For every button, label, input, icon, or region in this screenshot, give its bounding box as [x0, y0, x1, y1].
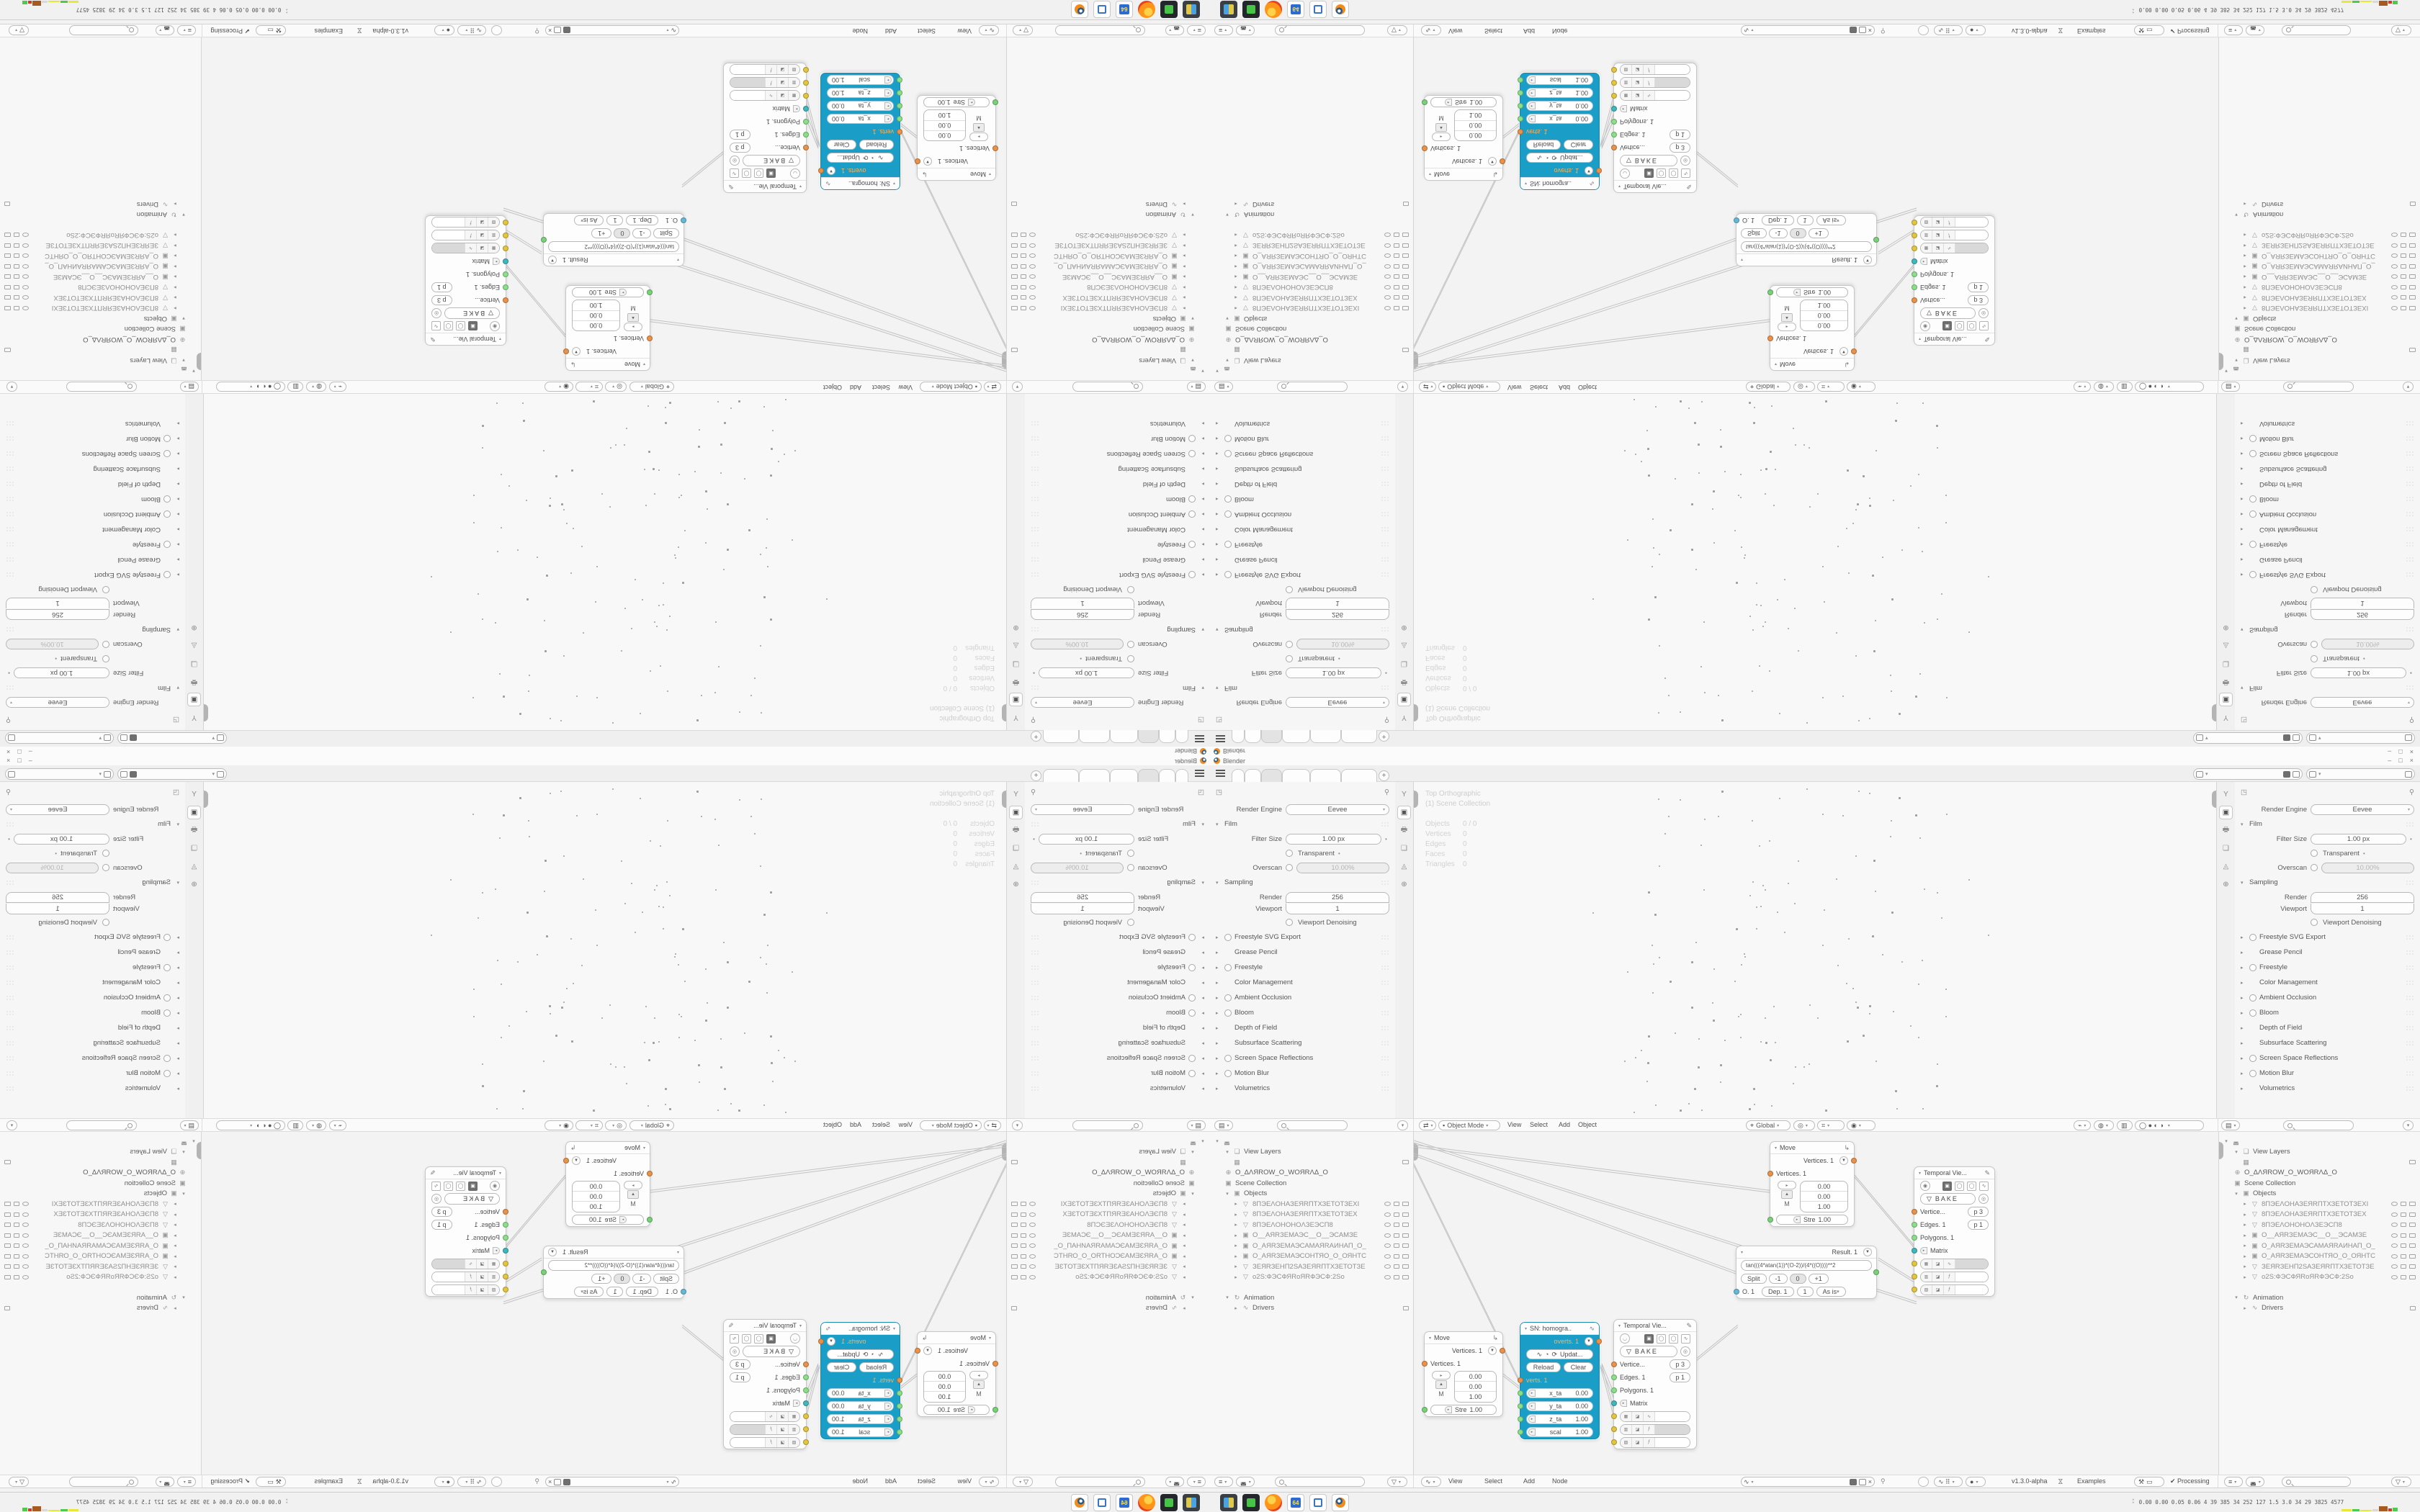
cube-toggle-icon[interactable]: ▣	[1942, 1182, 1952, 1191]
editor-type-button[interactable]: ⇄▾	[1419, 382, 1436, 392]
sampling-render-field[interactable]: 256	[2311, 610, 2414, 621]
outliner-row-drivers[interactable]: ▸∿Drivers	[2223, 199, 2417, 210]
drag-grip-icon[interactable]	[2406, 557, 2414, 563]
collapsed-section-header[interactable]: ▸ Color Management	[1031, 522, 1204, 537]
outliner-object-row[interactable]: ▸▽ 8ПЭЕΛОНОНОΛЗЕЭСП8	[1214, 282, 1410, 293]
hide-eye-icon[interactable]	[1029, 1254, 1036, 1259]
render-properties-tab[interactable]: ▣	[1397, 693, 1411, 706]
section-checkbox[interactable]	[1188, 436, 1196, 443]
outliner-search-input[interactable]	[69, 1477, 138, 1487]
outliner-object-row[interactable]: ▸▣ O_АЯRЗЕМАЭСОНТЯО_O_ОЯНТС	[1214, 251, 1410, 261]
socket-matrix-in[interactable]	[1912, 1248, 1917, 1254]
node-move[interactable]: ▾Move↳ Vertices. 1▼ Vertices. 1 ▸▲M 0.00…	[565, 1141, 650, 1227]
hide-viewport-icon[interactable]	[1394, 285, 1399, 289]
outliner-row-scene-collection[interactable]: ▣Scene Collection	[1010, 1178, 1206, 1189]
collapsed-section-header[interactable]: ▸ Bloom	[1031, 492, 1204, 507]
hide-viewport-icon[interactable]	[14, 285, 19, 289]
collapsed-section-header[interactable]: ▸ Freestyle	[2241, 960, 2414, 975]
collapsed-section-header[interactable]: ▸ Screen Space Reflections	[2241, 446, 2414, 462]
filter-mode-button[interactable]: ◛▾	[2246, 1477, 2264, 1487]
collapsed-section-header[interactable]: ▸ Volumetrics	[2241, 1081, 2414, 1096]
outliner-object-row[interactable]: ▸▽ 8ПЭЕΛОНОНОΛЗЕЭСП8	[2223, 1220, 2417, 1230]
socket-polygons-in[interactable]	[1611, 1387, 1617, 1393]
drag-grip-icon[interactable]	[1031, 1071, 1039, 1076]
outliner-object-row[interactable]: ▸▽ 8ПЭЕΛОНОНОΛЗЕЭСП8	[1214, 1220, 1410, 1230]
outliner-object-row[interactable]: ▸▽ ЗЕЯRЗЕНП2SАЗЕЯRПТХЗЕТОТЗЕ	[3, 240, 197, 251]
drag-grip-icon[interactable]	[1031, 1056, 1039, 1061]
add-workspace-button[interactable]: +	[1031, 731, 1041, 742]
camera-icon[interactable]	[1011, 348, 1018, 352]
hide-render-icon[interactable]	[2409, 1202, 2416, 1206]
hide-eye-icon[interactable]	[22, 1223, 29, 1227]
socket-texture-in[interactable]	[803, 93, 809, 99]
drag-grip-icon[interactable]	[2406, 512, 2414, 518]
sampling-section-header[interactable]: ▾Sampling	[2241, 622, 2414, 637]
outliner-row-view-layers[interactable]: ▾❏View Layers	[1010, 355, 1206, 366]
outliner-object-row[interactable]: ▸▽ ЗЕЯRЗЕНП2SАЗЕЯRПТХЗЕТОТЗЕ	[1214, 1261, 1410, 1272]
minimize-button[interactable]: –	[2388, 757, 2391, 764]
collapsed-section-header[interactable]: ▸ Freestyle	[2241, 537, 2414, 552]
collapsed-section-header[interactable]: ▸ Ambient Occlusion	[1216, 990, 1389, 1005]
tool-circle-button[interactable]	[491, 25, 502, 35]
menu-view[interactable]: View	[1448, 1477, 1462, 1485]
sampling-render-field[interactable]: 256	[1286, 610, 1389, 621]
collapsed-section-header[interactable]: ▸ Ambient Occlusion	[1031, 507, 1204, 522]
hide-viewport-icon[interactable]	[1021, 243, 1026, 248]
outliner-object-row[interactable]: ▸▽ 8ПЭЕΛОНАЗЕЯRПТХЗЕТОТЗЕХ	[3, 292, 197, 303]
hide-viewport-icon[interactable]	[14, 1233, 19, 1238]
unlink-x-icon[interactable]: ×	[548, 27, 552, 34]
formula-expression-field[interactable]: tan(((4*atan(1))*(O-2))/(4*((O))))**2	[548, 241, 679, 252]
socket-strength[interactable]	[647, 289, 653, 295]
hide-eye-icon[interactable]	[22, 1254, 29, 1259]
camera-icon[interactable]	[2409, 1160, 2416, 1164]
editor-type-button[interactable]: ▤▾	[1214, 382, 1233, 392]
filter-size-field[interactable]: 1.00 px	[1286, 834, 1381, 845]
add-workspace-button[interactable]: +	[1379, 770, 1389, 781]
socket-edges-in[interactable]	[1912, 1222, 1917, 1228]
bake-button[interactable]: ▽BAKE	[1920, 1193, 1976, 1205]
workspace-tab-4[interactable]	[1110, 730, 1138, 743]
mode-selector[interactable]: ▪ Object Mode▾	[920, 382, 982, 392]
filter-button[interactable]: ▽▾	[9, 1477, 29, 1487]
socket-output[interactable]	[681, 1289, 686, 1295]
socket-strength[interactable]	[1767, 289, 1773, 295]
move-matrix-widget[interactable]: ▸▲M 0.000.001.00	[923, 109, 990, 141]
texture-slot-row[interactable]: ▧◪ƒ	[730, 1437, 800, 1448]
view-layer-name-field[interactable]	[17, 770, 97, 778]
outliner-search-input[interactable]	[1055, 25, 1145, 35]
drag-grip-icon[interactable]	[2406, 542, 2414, 548]
drag-grip-icon[interactable]	[6, 1071, 14, 1076]
drag-grip-icon[interactable]	[1381, 1010, 1389, 1016]
outliner-object-row[interactable]: ▸▽ 8ПЭЕΛОНАЗЕЯRПТХЗЕТОТЗЕХ	[1214, 1210, 1410, 1220]
close-button[interactable]: ×	[6, 748, 10, 755]
outliner-row-drivers[interactable]: ▸∿Drivers	[2223, 1303, 2417, 1314]
hide-render-icon[interactable]	[4, 264, 11, 269]
collapsed-section-header[interactable]: ▸ Grease Pencil	[1216, 552, 1389, 567]
collapsed-section-header[interactable]: ▸ Volumetrics	[2241, 416, 2414, 431]
drag-grip-icon[interactable]	[1031, 980, 1039, 986]
cube-toggle-icon[interactable]: ▣	[1644, 169, 1654, 179]
workspace-tab-3-active[interactable]	[1261, 769, 1282, 782]
filter-button[interactable]: ▽▾	[2391, 1477, 2411, 1487]
scene-selector[interactable]: ▾	[117, 732, 227, 744]
outliner-row-drivers[interactable]: ▸∿Drivers	[1010, 1303, 1206, 1314]
circle-toggle-icon[interactable]: ◯	[742, 1334, 751, 1344]
socket-edges-in[interactable]	[1611, 1374, 1617, 1380]
drag-grip-icon[interactable]	[2406, 1025, 2414, 1031]
hide-eye-icon[interactable]	[2391, 285, 2398, 289]
workspace-tab-5[interactable]	[1079, 730, 1110, 743]
taskbar-file-sync-icon[interactable]	[1287, 1, 1304, 18]
pin-icon[interactable]: ⚲	[6, 716, 11, 724]
socket-verts-in[interactable]	[897, 1377, 902, 1383]
cube-toggle-icon[interactable]: ▣	[766, 169, 776, 179]
menu-node[interactable]: Node	[852, 27, 868, 35]
taskbar-virtual-machine-icon[interactable]	[1183, 1494, 1200, 1511]
strength-field[interactable]: ▸Stre1.00	[923, 97, 990, 107]
sampling-section-header[interactable]: ▾Sampling	[1031, 622, 1204, 637]
animate-dot-icon[interactable]: •	[1338, 656, 1343, 662]
section-checkbox[interactable]	[1224, 541, 1232, 549]
section-checkbox[interactable]	[1188, 1009, 1196, 1017]
socket-matrix-in[interactable]	[1912, 258, 1917, 264]
tool-properties-tab[interactable]: Y	[1397, 788, 1411, 801]
hide-render-icon[interactable]	[2409, 243, 2416, 248]
collapsed-section-header[interactable]: ▸ Bloom	[2241, 1005, 2414, 1020]
node-temporal-vertex[interactable]: ▾Temporal Vie...✎ ◡▣◯◯∿ ▽BAKE◎ Vertice..…	[1613, 63, 1697, 193]
collapsed-section-header[interactable]: ▸ Subsurface Scattering	[1031, 462, 1204, 477]
tool-properties-tab[interactable]: Y	[1009, 711, 1023, 724]
outliner-row-objects[interactable]: ▾▣Objects	[2223, 313, 2417, 324]
workspace-tab-3-active[interactable]	[1138, 730, 1159, 743]
camera-icon[interactable]	[4, 348, 11, 352]
filter-mode-button[interactable]: ◛▾	[1236, 1477, 1255, 1487]
outliner-row-animation[interactable]: ▾↻Animation	[2223, 210, 2417, 220]
collapsed-section-header[interactable]: ▸ Grease Pencil	[1216, 945, 1389, 960]
outliner-object-row[interactable]: ▸▽ 8ПЭЕΛОНАЗЕЯRПТХЗЕТОТЗЕХ	[2223, 1210, 2417, 1220]
add-workspace-button[interactable]: +	[1379, 731, 1389, 742]
view-layer-selector[interactable]: ▾	[5, 768, 114, 780]
proportional-editing-toggle[interactable]: ◉▾	[1847, 382, 1875, 392]
overscan-field[interactable]: 10.00%	[6, 639, 99, 650]
drag-grip-icon[interactable]	[1381, 627, 1389, 633]
display-mode-button[interactable]: ≡▾	[177, 25, 196, 35]
dropdown-button[interactable]: ▼	[923, 157, 932, 166]
output-properties-tab[interactable]: 🖶	[1009, 675, 1023, 688]
sampling-section-header[interactable]: ▾Sampling	[2241, 875, 2414, 890]
tool-properties-tab[interactable]: Y	[187, 711, 201, 724]
settings-pill[interactable]: ⚒▭	[256, 1477, 286, 1487]
hide-render-icon[interactable]	[4, 1254, 11, 1259]
tool-properties-tab[interactable]: Y	[2219, 711, 2233, 724]
taskbar-screen-recorder-icon[interactable]	[1242, 1, 1260, 18]
hide-eye-icon[interactable]	[1029, 1275, 1036, 1279]
hide-render-icon[interactable]	[1011, 1212, 1018, 1217]
outliner-object-row[interactable]: ▸▽ 8ПЭЕΛОНАЗЕЯRПТХЗЕТОТЗЕХ	[3, 1210, 197, 1220]
vertices-count-field[interactable]: p 3	[730, 1359, 750, 1369]
collapsed-section-header[interactable]: ▸ Volumetrics	[1216, 416, 1389, 431]
collapsed-section-header[interactable]: ▸ Bloom	[1216, 1005, 1389, 1020]
view-layer-properties-tab[interactable]: ❏	[2219, 842, 2233, 855]
scene-selector[interactable]: ▾	[2193, 732, 2303, 744]
drag-grip-icon[interactable]	[2406, 880, 2414, 886]
loop-toggle-icon[interactable]: ∿	[1979, 1182, 1989, 1191]
hide-render-icon[interactable]	[1402, 243, 1409, 248]
pin-icon[interactable]: ⚲	[534, 1477, 539, 1485]
collapsed-section-header[interactable]: ▸ Freestyle	[1216, 960, 1389, 975]
collapsed-section-header[interactable]: ▸ Screen Space Reflections	[1031, 446, 1204, 462]
outliner-object-row[interactable]: ▸▽ o2S:ФЭСФЯRoЯRФЭСФ:2So	[2223, 230, 2417, 240]
hide-viewport-icon[interactable]	[2401, 295, 2406, 300]
collapsed-section-header[interactable]: ▸ Freestyle	[1031, 960, 1204, 975]
drag-grip-icon[interactable]	[6, 542, 14, 548]
circle-toggle-icon[interactable]: ◯	[1669, 169, 1678, 179]
sn-value-field[interactable]: ▸x_ta0.00	[827, 114, 894, 124]
collapsed-section-header[interactable]: ▸ Screen Space Reflections	[1031, 1050, 1204, 1066]
drag-grip-icon[interactable]	[6, 467, 14, 472]
sn-value-field[interactable]: ▸x_ta0.00	[1526, 114, 1593, 124]
outliner-row-objects[interactable]: ▾▣Objects	[3, 313, 197, 324]
hide-render-icon[interactable]	[4, 285, 11, 289]
menu-view[interactable]: View	[958, 1477, 972, 1485]
node-move[interactable]: ▾Move↳ Vertices. 1▼ Vertices. 1 ▸▲M 0.00…	[917, 95, 996, 181]
hide-render-icon[interactable]	[2409, 1264, 2416, 1269]
socket-value-in[interactable]	[897, 1403, 902, 1409]
options-dropdown-button[interactable]: ▾	[6, 1120, 17, 1130]
render-properties-tab[interactable]: ▣	[1009, 693, 1023, 706]
value-field[interactable]: +1	[591, 228, 611, 238]
menu-add[interactable]: Add	[885, 27, 897, 35]
texture-slot-row[interactable]: ▥◪ƒ	[431, 230, 500, 241]
outliner-row-scene-collection[interactable]: ▣Scene Collection	[3, 1178, 197, 1189]
menu-view[interactable]: View	[1507, 384, 1521, 391]
workspace-tab-1[interactable]	[1175, 769, 1188, 782]
up-button[interactable]: ▲	[973, 1380, 985, 1389]
outliner-row-scene-collection[interactable]: ▣Scene Collection	[2223, 324, 2417, 335]
outliner-row-scene-collection[interactable]: ▣Scene Collection	[3, 324, 197, 335]
outliner-row-animation[interactable]: ▾↻Animation	[1214, 1292, 1410, 1303]
outliner-row-scene-collection[interactable]: ▣Scene Collection	[2223, 1178, 2417, 1189]
render-engine-select[interactable]: Eevee▾	[2311, 698, 2414, 708]
scene-properties-tab[interactable]: ◬	[2219, 639, 2233, 652]
dropdown-button[interactable]: ▼	[827, 166, 835, 175]
render-properties-tab[interactable]: ▣	[2219, 806, 2233, 819]
menu-node[interactable]: Node	[852, 1477, 868, 1485]
socket-value-in[interactable]	[1518, 90, 1523, 96]
sn-value-field[interactable]: ▸y_ta0.00	[827, 101, 894, 111]
formula-expression-field[interactable]: tan(((4*atan(1))*(O-2))/(4*((O))))**2	[1741, 1260, 1872, 1271]
hide-viewport-icon[interactable]	[1394, 1212, 1399, 1217]
section-checkbox[interactable]	[163, 541, 171, 549]
socket-vertices-out[interactable]	[915, 1348, 920, 1354]
section-checkbox[interactable]	[163, 496, 171, 503]
view-layer-properties-tab[interactable]: ❏	[1009, 657, 1023, 670]
drag-grip-icon[interactable]	[2406, 497, 2414, 503]
outliner-object-row[interactable]: ▸▽ 8ПЭЕΛОНОНОΛЗЕЭСП8	[1010, 1220, 1206, 1230]
taskbar-file-sync-icon[interactable]	[1116, 1494, 1133, 1511]
view-layer-properties-tab[interactable]: ❏	[187, 657, 201, 670]
texture-slot-row[interactable]: ▦◪∿	[1920, 243, 1989, 254]
socket-vertices-out[interactable]	[563, 1158, 569, 1164]
taskbar-blender-icon[interactable]	[1332, 1, 1349, 18]
hide-viewport-icon[interactable]	[1394, 264, 1399, 269]
update-button[interactable]: ∿◔⟳Updat...	[827, 153, 894, 163]
menu-add[interactable]: Add	[850, 1121, 861, 1128]
socket-vertices-in[interactable]	[1422, 1361, 1428, 1367]
section-checkbox[interactable]	[163, 451, 171, 458]
loop-toggle-icon[interactable]: ∿	[431, 322, 441, 331]
outliner-search-input[interactable]	[2282, 1477, 2351, 1487]
hide-render-icon[interactable]	[4, 1202, 11, 1206]
outliner-row-render-layer[interactable]: ▦	[2223, 345, 2417, 356]
drag-grip-icon[interactable]	[1031, 557, 1039, 563]
drag-grip-icon[interactable]	[1031, 950, 1039, 955]
socket-value-in[interactable]	[1518, 1429, 1523, 1435]
dropdown-button[interactable]: ▼	[548, 1248, 557, 1256]
filter-mode-button[interactable]: ◛▾	[1165, 25, 1184, 35]
dropdown-button[interactable]: ▼	[827, 1337, 835, 1346]
section-checkbox[interactable]	[163, 1070, 171, 1077]
editor-type-button[interactable]: ▤▾	[1187, 1120, 1206, 1130]
hide-render-icon[interactable]	[2409, 1233, 2416, 1238]
outliner-row-objects[interactable]: ▾▣Objects	[3, 1189, 197, 1200]
texture-slot-row[interactable]: ▥◪ƒ	[730, 1424, 800, 1435]
edges-count-field[interactable]: p 1	[730, 1372, 750, 1382]
edges-count-field[interactable]: p 1	[1670, 1372, 1690, 1382]
output-properties-tab[interactable]: 🖶	[187, 824, 201, 837]
outliner-object-row[interactable]: ▸▣ O_АЯRЗЕМАЭСОНТЯО_O_ОЯНТС	[1010, 251, 1206, 261]
viewport-3d[interactable]: Top Orthographic (1) Scene Collection Ob…	[1414, 394, 2216, 730]
drag-grip-icon[interactable]	[1381, 527, 1389, 533]
node-editor[interactable]: ▾Move↳ Vertices. 1▼ Vertices. 1 ▸▲M 0.00…	[1414, 1132, 2218, 1475]
cube-toggle-icon[interactable]: ▣	[468, 1182, 478, 1191]
menu-hamburger-icon[interactable]	[1195, 735, 1204, 742]
transparent-checkbox[interactable]	[1127, 850, 1134, 857]
hide-render-icon[interactable]	[2409, 1275, 2416, 1279]
filter-button[interactable]: ▽▾	[2391, 25, 2411, 35]
socket-vertices-in[interactable]	[1611, 1362, 1617, 1367]
scene-name-field[interactable]	[2210, 734, 2281, 742]
collapsed-section-header[interactable]: ▸ Motion Blur	[1216, 431, 1389, 446]
outliner-row-animation[interactable]: ▾↻Animation	[1214, 210, 1410, 220]
hide-viewport-icon[interactable]	[14, 1212, 19, 1217]
sn-value-field[interactable]: ▸x_ta0.00	[1526, 1388, 1593, 1398]
menu-object[interactable]: Object	[1578, 1121, 1597, 1128]
section-checkbox[interactable]	[2249, 1009, 2257, 1017]
socket-value-in[interactable]	[897, 1429, 902, 1435]
outliner-row-world[interactable]: ⊕O_ΔΛЯROW_O_WOЯRΛΔ_O	[3, 1168, 197, 1179]
settings-pill[interactable]: ⚒▭	[256, 25, 286, 35]
maximize-button[interactable]: □	[2398, 748, 2402, 755]
drag-grip-icon[interactable]	[6, 950, 14, 955]
hide-eye-icon[interactable]	[22, 285, 29, 289]
transparent-checkbox[interactable]	[102, 850, 109, 857]
properties-search-input[interactable]	[2283, 382, 2354, 392]
sn-value-field[interactable]: ▸y_ta0.00	[1526, 101, 1593, 111]
hide-viewport-icon[interactable]	[14, 295, 19, 300]
transform-orientation-selector[interactable]: ⌖ Global▾	[1746, 382, 1791, 392]
formula-expression-field[interactable]: tan(((4*atan(1))*(O-2))/(4*((O))))**2	[1741, 241, 1872, 252]
texture-slot-row[interactable]: ▦◪∿	[431, 1259, 500, 1269]
options-dropdown-button[interactable]: ▾	[2403, 382, 2414, 392]
outliner-object-row[interactable]: ▸▣ O_АЯRЗЕМАЭСАМАЯRАИНАП_O_	[1214, 1241, 1410, 1251]
menu-select[interactable]: Select	[872, 384, 890, 391]
strength-field[interactable]: ▸Stre1.00	[1776, 1215, 1848, 1225]
sampling-section-header[interactable]: ▾Sampling	[1216, 875, 1389, 890]
drag-grip-icon[interactable]	[2406, 1086, 2414, 1092]
hide-eye-icon[interactable]	[22, 253, 29, 258]
outliner-object-row[interactable]: ▸▣ O_АЯRЗЕМАЭСАМАЯRАИНАП_O_	[3, 261, 197, 272]
outliner-object-row[interactable]: ▸▽ 8ПЭЕΛОНАЗЕЯRПТХЗЕТОТЗЕХ	[2223, 292, 2417, 303]
vertices-count-field[interactable]: p 3	[1670, 1359, 1690, 1369]
sn-value-field[interactable]: ▸z_ta1.00	[1526, 1414, 1593, 1424]
pin-icon[interactable]: ⚲	[1881, 27, 1886, 35]
collapsed-section-header[interactable]: ▸ Motion Blur	[2241, 431, 2414, 446]
node-move[interactable]: ▾Move↳ Vertices. 1▼ Vertices. 1 ▸▲M 0.00…	[917, 1331, 996, 1417]
copy-icon[interactable]	[2405, 771, 2412, 778]
pin-icon[interactable]: ⚲	[1384, 716, 1389, 724]
outliner-row-objects[interactable]: ▾▣Objects	[1214, 313, 1410, 324]
outliner-object-row[interactable]: ▸▽ ЗЕЯRЗЕНП2SАЗЕЯRПТХЗЕТОТЗЕ	[3, 1261, 197, 1272]
hide-viewport-icon[interactable]	[14, 243, 19, 248]
drag-grip-icon[interactable]	[1381, 436, 1389, 442]
outliner-row-render-layer[interactable]: ▦	[2223, 1157, 2417, 1168]
properties-search-input[interactable]	[1072, 382, 1143, 392]
properties-search-input[interactable]	[1277, 1120, 1348, 1130]
texture-slot-row[interactable]: ▧◪ƒ	[1920, 217, 1989, 228]
as-is-select[interactable]: As is ▾	[1816, 1287, 1846, 1297]
properties-search-input[interactable]	[66, 382, 137, 392]
dropdown-button[interactable]: ▼	[1863, 1248, 1872, 1256]
collapsed-section-header[interactable]: ▸ Color Management	[2241, 522, 2414, 537]
collapsed-section-header[interactable]: ▸ Color Management	[6, 975, 179, 990]
overscan-checkbox[interactable]	[1286, 641, 1293, 648]
sampling-section-header[interactable]: ▾Sampling	[1031, 875, 1204, 890]
drag-grip-icon[interactable]	[1381, 512, 1389, 518]
hide-render-icon[interactable]	[1011, 1243, 1018, 1248]
node-temporal-vertex[interactable]: ▾Temporal Vie...✎ ◉▣◯◯∿ ▽BAKE◎ Vertice..…	[425, 1166, 506, 1297]
hide-eye-icon[interactable]	[2391, 1233, 2398, 1238]
value-field[interactable]: 0	[614, 228, 630, 238]
hide-render-icon[interactable]	[2409, 285, 2416, 289]
transparent-checkbox[interactable]	[102, 655, 109, 662]
socket-texture-in[interactable]	[1611, 93, 1617, 99]
sidebar-toggle-handle[interactable]	[2219, 1142, 2223, 1159]
texture-slot-row[interactable]: ▧◪ƒ	[1620, 1437, 1690, 1448]
filter-mode-button[interactable]: ◛▾	[156, 1477, 174, 1487]
film-section-header[interactable]: ▾Film	[2241, 680, 2414, 696]
view-layer-properties-tab[interactable]: ❏	[1009, 842, 1023, 855]
dropdown-button[interactable]: ▼	[572, 347, 581, 356]
hide-viewport-icon[interactable]	[14, 274, 19, 279]
outliner-object-row[interactable]: ▸▽ o2S:ФЭСФЯRoЯRФЭСФ:2So	[1010, 1272, 1206, 1283]
overlays-toggle[interactable]: ◍▾	[2094, 382, 2114, 392]
editor-type-button[interactable]: ⇄▾	[984, 382, 1001, 392]
circle-toggle-icon[interactable]: ◯	[1967, 1182, 1976, 1191]
filter-mode-button[interactable]: ◛▾	[2246, 25, 2264, 35]
hide-viewport-icon[interactable]	[1021, 1243, 1026, 1248]
move-matrix-widget[interactable]: ▸▲M 0.000.001.00	[572, 300, 644, 331]
animate-dot-icon[interactable]: •	[53, 656, 57, 662]
dropdown-button[interactable]: ▼	[1585, 166, 1593, 175]
socket-vertices-in[interactable]	[503, 297, 508, 303]
texture-slot-row[interactable]: ▧◪ƒ	[1620, 65, 1690, 76]
outliner-row-scene-collection[interactable]: ▣Scene Collection	[1214, 324, 1410, 335]
outliner-row-world[interactable]: ⊕O_ΔΛЯROW_O_WOЯRΛΔ_O	[1214, 1168, 1410, 1179]
socket-polygons-in[interactable]	[1912, 1235, 1917, 1241]
